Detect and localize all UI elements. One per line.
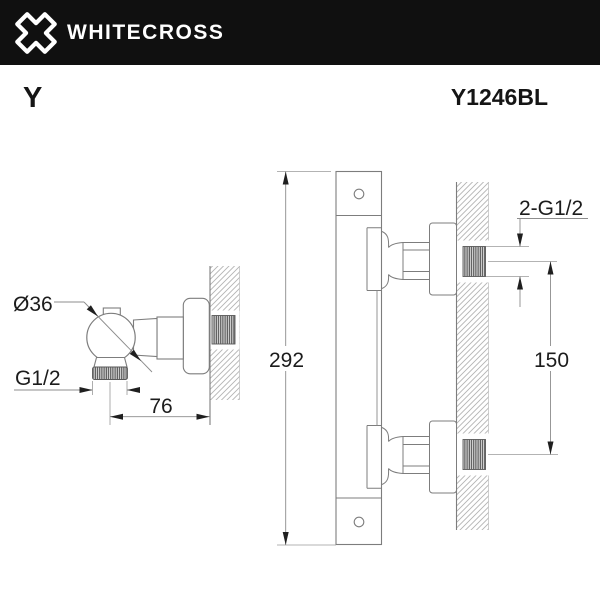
right-view-drawing: 292 150 2-G1/2 bbox=[269, 172, 588, 546]
spec-sheet: WHITECROSS Y Y1246BL bbox=[0, 0, 600, 600]
outlet-neck bbox=[94, 358, 127, 368]
valve-body-circle bbox=[87, 313, 135, 361]
diameter-label: Ø36 bbox=[13, 293, 53, 316]
spacing-dimension: 150 bbox=[488, 262, 569, 455]
wall-hatch bbox=[457, 182, 490, 530]
outlet-thread-label: G1/2 bbox=[15, 367, 61, 390]
top-wall-thread bbox=[463, 247, 486, 277]
depth-dimension: 76 bbox=[110, 382, 210, 425]
height-label: 292 bbox=[269, 349, 304, 372]
connection-thread-label: 2-G1/2 bbox=[519, 197, 583, 220]
outlet-thread bbox=[93, 367, 128, 380]
body-cylinder bbox=[157, 317, 183, 359]
left-view-drawing: Ø36 G1/2 76 bbox=[13, 266, 240, 425]
body-cone bbox=[134, 319, 158, 357]
connection-thread-dimension: 2-G1/2 bbox=[486, 197, 588, 307]
technical-drawing: Ø36 G1/2 76 bbox=[0, 0, 600, 600]
depth-label: 76 bbox=[149, 395, 172, 418]
bottom-wall-thread bbox=[463, 440, 486, 470]
spacing-label: 150 bbox=[534, 349, 569, 372]
height-dimension: 292 bbox=[269, 172, 336, 546]
wall-thread bbox=[212, 316, 235, 345]
wall-flange bbox=[183, 298, 209, 374]
